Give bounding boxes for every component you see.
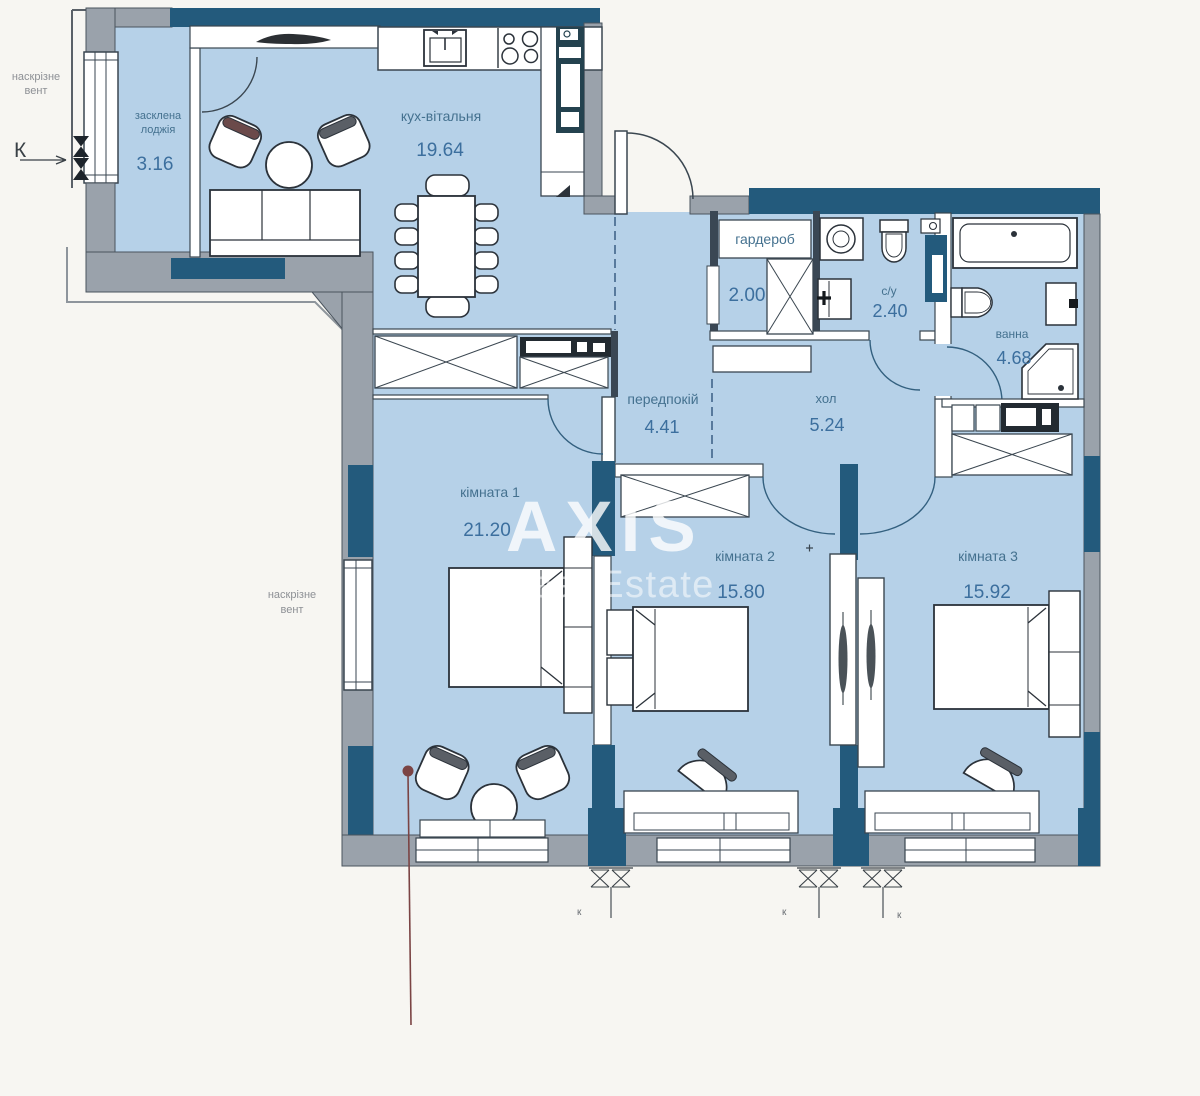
svg-text:к: к [577, 907, 582, 918]
svg-text:наскрізне: наскрізне [268, 589, 316, 601]
svg-text:вент: вент [281, 604, 304, 616]
svg-text:15.80: 15.80 [717, 582, 765, 603]
svg-text:кімната 3: кімната 3 [958, 548, 1018, 564]
svg-text:лоджія: лоджія [141, 124, 176, 136]
svg-text:хол: хол [816, 391, 837, 406]
svg-text:4.41: 4.41 [644, 417, 679, 437]
svg-text:кух-вітальня: кух-вітальня [401, 108, 481, 124]
svg-text:к: к [782, 907, 787, 918]
svg-text:Real Estate: Real Estate [502, 564, 715, 606]
svg-text:с/у: с/у [881, 284, 896, 298]
svg-text:19.64: 19.64 [416, 140, 464, 161]
svg-text:15.92: 15.92 [963, 582, 1011, 603]
svg-text:засклена: засклена [135, 110, 182, 122]
svg-text:К: К [14, 139, 27, 162]
svg-text:наскрізне: наскрізне [12, 71, 60, 83]
svg-text:ванна: ванна [996, 327, 1029, 341]
svg-text:4.68: 4.68 [996, 348, 1031, 368]
svg-text:3.16: 3.16 [137, 154, 174, 175]
svg-text:21.20: 21.20 [463, 520, 511, 541]
svg-text:AXIS: AXIS [506, 488, 704, 567]
svg-text:к: к [897, 910, 902, 921]
svg-text:2.40: 2.40 [872, 301, 907, 321]
svg-text:вент: вент [25, 85, 48, 97]
svg-text:2.00: 2.00 [729, 285, 766, 306]
svg-text:кімната 2: кімната 2 [715, 548, 775, 564]
svg-text:передпокій: передпокій [627, 391, 698, 407]
svg-text:5.24: 5.24 [809, 415, 844, 435]
svg-text:гардероб: гардероб [735, 231, 795, 247]
